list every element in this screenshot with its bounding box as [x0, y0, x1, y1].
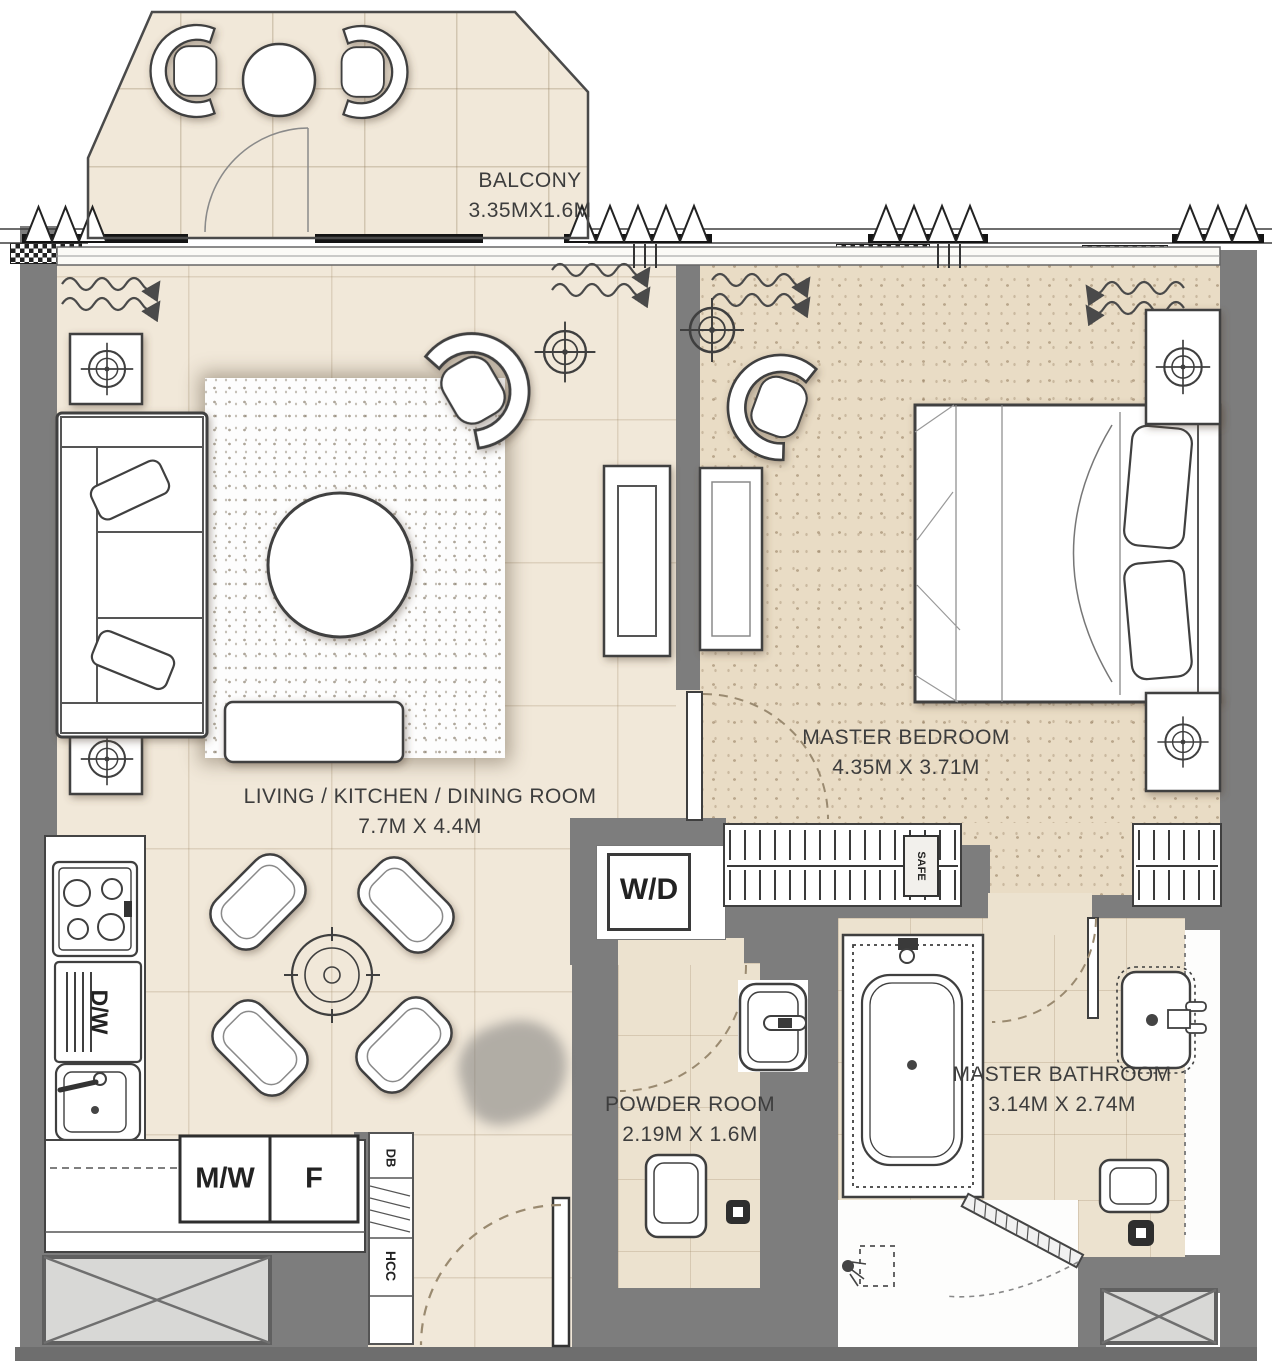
powder-name: POWDER ROOM [605, 1090, 775, 1120]
db-label: DB [384, 1149, 399, 1168]
hanger-icons [1138, 830, 1216, 860]
railing-sawtooth-icon [872, 206, 984, 241]
powder-door-threshold [618, 938, 744, 965]
railing-sawtooth-icon [1176, 206, 1260, 241]
dishwasher-label: D/W [86, 990, 113, 1035]
hanger-icons [1138, 870, 1216, 900]
railing-hatch-icon [10, 243, 82, 264]
powder-dims: 2.19M X 1.6M [605, 1120, 775, 1150]
bathroom-name: MASTER BATHROOM [952, 1060, 1171, 1090]
powder-label: POWDER ROOM 2.19M X 1.6M [605, 1090, 775, 1150]
area-rug [205, 378, 505, 758]
wall-right [1220, 250, 1257, 1347]
vanity-counter-strip [1185, 930, 1220, 1240]
safe-label: SAFE [915, 851, 927, 880]
wall-divider [676, 252, 700, 690]
bathroom-floor-lower [1078, 1200, 1185, 1257]
bedroom-door-threshold [676, 688, 700, 820]
service-shaft-left [42, 1255, 272, 1345]
wall-utility-strip [354, 1132, 368, 1347]
railing-hatch-icon [836, 244, 930, 264]
wall-shower-left [760, 1195, 838, 1347]
balcony-label: BALCONY 3.35MX1.6M [468, 166, 591, 226]
bathroom-label: MASTER BATHROOM 3.14M X 2.74M [952, 1060, 1171, 1120]
floor-plan: BALCONY 3.35MX1.6M LIVING / KITCHEN / DI… [0, 0, 1272, 1372]
bathroom-dims: 3.14M X 2.74M [952, 1090, 1171, 1120]
railing-hatch-icon [1082, 245, 1168, 265]
fridge-label: F [305, 1163, 323, 1196]
living-label: LIVING / KITCHEN / DINING ROOM 7.7M X 4.… [244, 782, 597, 842]
service-shaft-right [1100, 1288, 1218, 1345]
bedroom-label: MASTER BEDROOM 4.35M X 3.71M [802, 723, 1009, 783]
wall-powder-bottom [572, 1285, 768, 1347]
living-name: LIVING / KITCHEN / DINING ROOM [244, 782, 597, 812]
bedroom-name: MASTER BEDROOM [802, 723, 1009, 753]
wall-bottom-band [15, 1347, 1257, 1361]
washer-dryer-label: W/D [620, 873, 678, 907]
wardrobe-rail [1136, 865, 1218, 867]
living-dims: 7.7M X 4.4M [244, 812, 597, 842]
balcony-dims: 3.35MX1.6M [468, 196, 591, 226]
master-bathroom-floor [838, 918, 1185, 1200]
shower-floor [838, 1200, 1078, 1347]
wall-bath-left [760, 905, 838, 1200]
wall-left [20, 226, 57, 1347]
wardrobe-b [1132, 823, 1222, 907]
hcc-label: HCC [383, 1251, 399, 1281]
bathroom-door-threshold [988, 893, 1092, 935]
bedroom-dims: 4.35M X 3.71M [802, 753, 1009, 783]
microwave-label: M/W [195, 1163, 255, 1196]
balcony-name: BALCONY [468, 166, 591, 196]
